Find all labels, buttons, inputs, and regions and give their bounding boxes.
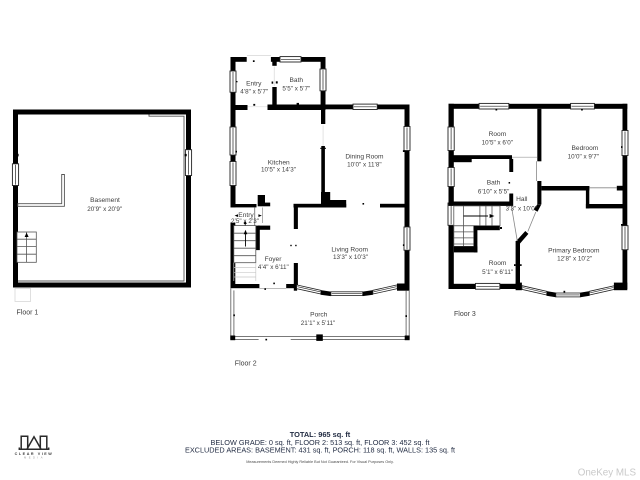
svg-text:5’1" x 6’11": 5’1" x 6’11"	[482, 269, 513, 276]
svg-text:21’1" x 5’11": 21’1" x 5’11"	[301, 320, 335, 327]
svg-text:10’5" x 6’0": 10’5" x 6’0"	[482, 140, 513, 147]
svg-text:Room: Room	[489, 131, 507, 138]
svg-text:Bath: Bath	[290, 77, 304, 84]
svg-text:Bath: Bath	[487, 180, 501, 187]
svg-text:3’3" x 10’0": 3’3" x 10’0"	[506, 206, 537, 213]
svg-text:EXCLUDED AREAS: BASEMENT: 431: EXCLUDED AREAS: BASEMENT: 431 sq. ft, PO…	[185, 446, 455, 455]
svg-text:MEDIA: MEDIA	[24, 456, 45, 460]
svg-text:Foyer: Foyer	[265, 256, 283, 263]
svg-text:12’8" x 10’2": 12’8" x 10’2"	[557, 256, 592, 263]
svg-text:Dining Room: Dining Room	[345, 154, 384, 161]
svg-text:Living Room: Living Room	[331, 247, 368, 254]
svg-text:Porch: Porch	[310, 312, 328, 319]
svg-text:Bedroom: Bedroom	[572, 145, 599, 152]
svg-text:6’10" x 5’5": 6’10" x 5’5"	[478, 189, 509, 196]
svg-text:Hall: Hall	[516, 196, 528, 203]
svg-text:CLEAR VIEW: CLEAR VIEW	[15, 452, 54, 456]
svg-text:Entry: Entry	[246, 81, 262, 88]
svg-text:Floor 3: Floor 3	[454, 311, 476, 318]
svg-text:13’3" x 10’3": 13’3" x 10’3"	[333, 254, 368, 261]
svg-text:Primary Bedroom: Primary Bedroom	[548, 248, 600, 255]
svg-text:Measurements Deemed Highly Rel: Measurements Deemed Highly Reliable But …	[246, 460, 394, 464]
svg-text:Floor 1: Floor 1	[17, 310, 39, 317]
svg-text:10’5" x 14’3": 10’5" x 14’3"	[261, 167, 296, 174]
svg-text:10’0" x 9’7": 10’0" x 9’7"	[568, 154, 599, 161]
svg-text:Floor 2: Floor 2	[235, 361, 257, 368]
svg-text:10’0" x 11’8": 10’0" x 11’8"	[347, 162, 381, 169]
svg-text:4’4" x 6’11": 4’4" x 6’11"	[258, 264, 289, 271]
svg-text:OneKey MLS: OneKey MLS	[578, 468, 637, 479]
svg-text:20’9" x 20’9": 20’9" x 20’9"	[87, 206, 122, 213]
svg-text:Basement: Basement	[90, 197, 120, 204]
svg-text:4’8" x 5’7": 4’8" x 5’7"	[240, 89, 268, 96]
svg-text:Room: Room	[489, 260, 507, 267]
svg-text:5’5" x 5’7": 5’5" x 5’7"	[282, 86, 310, 93]
svg-text:Kitchen: Kitchen	[268, 159, 290, 166]
